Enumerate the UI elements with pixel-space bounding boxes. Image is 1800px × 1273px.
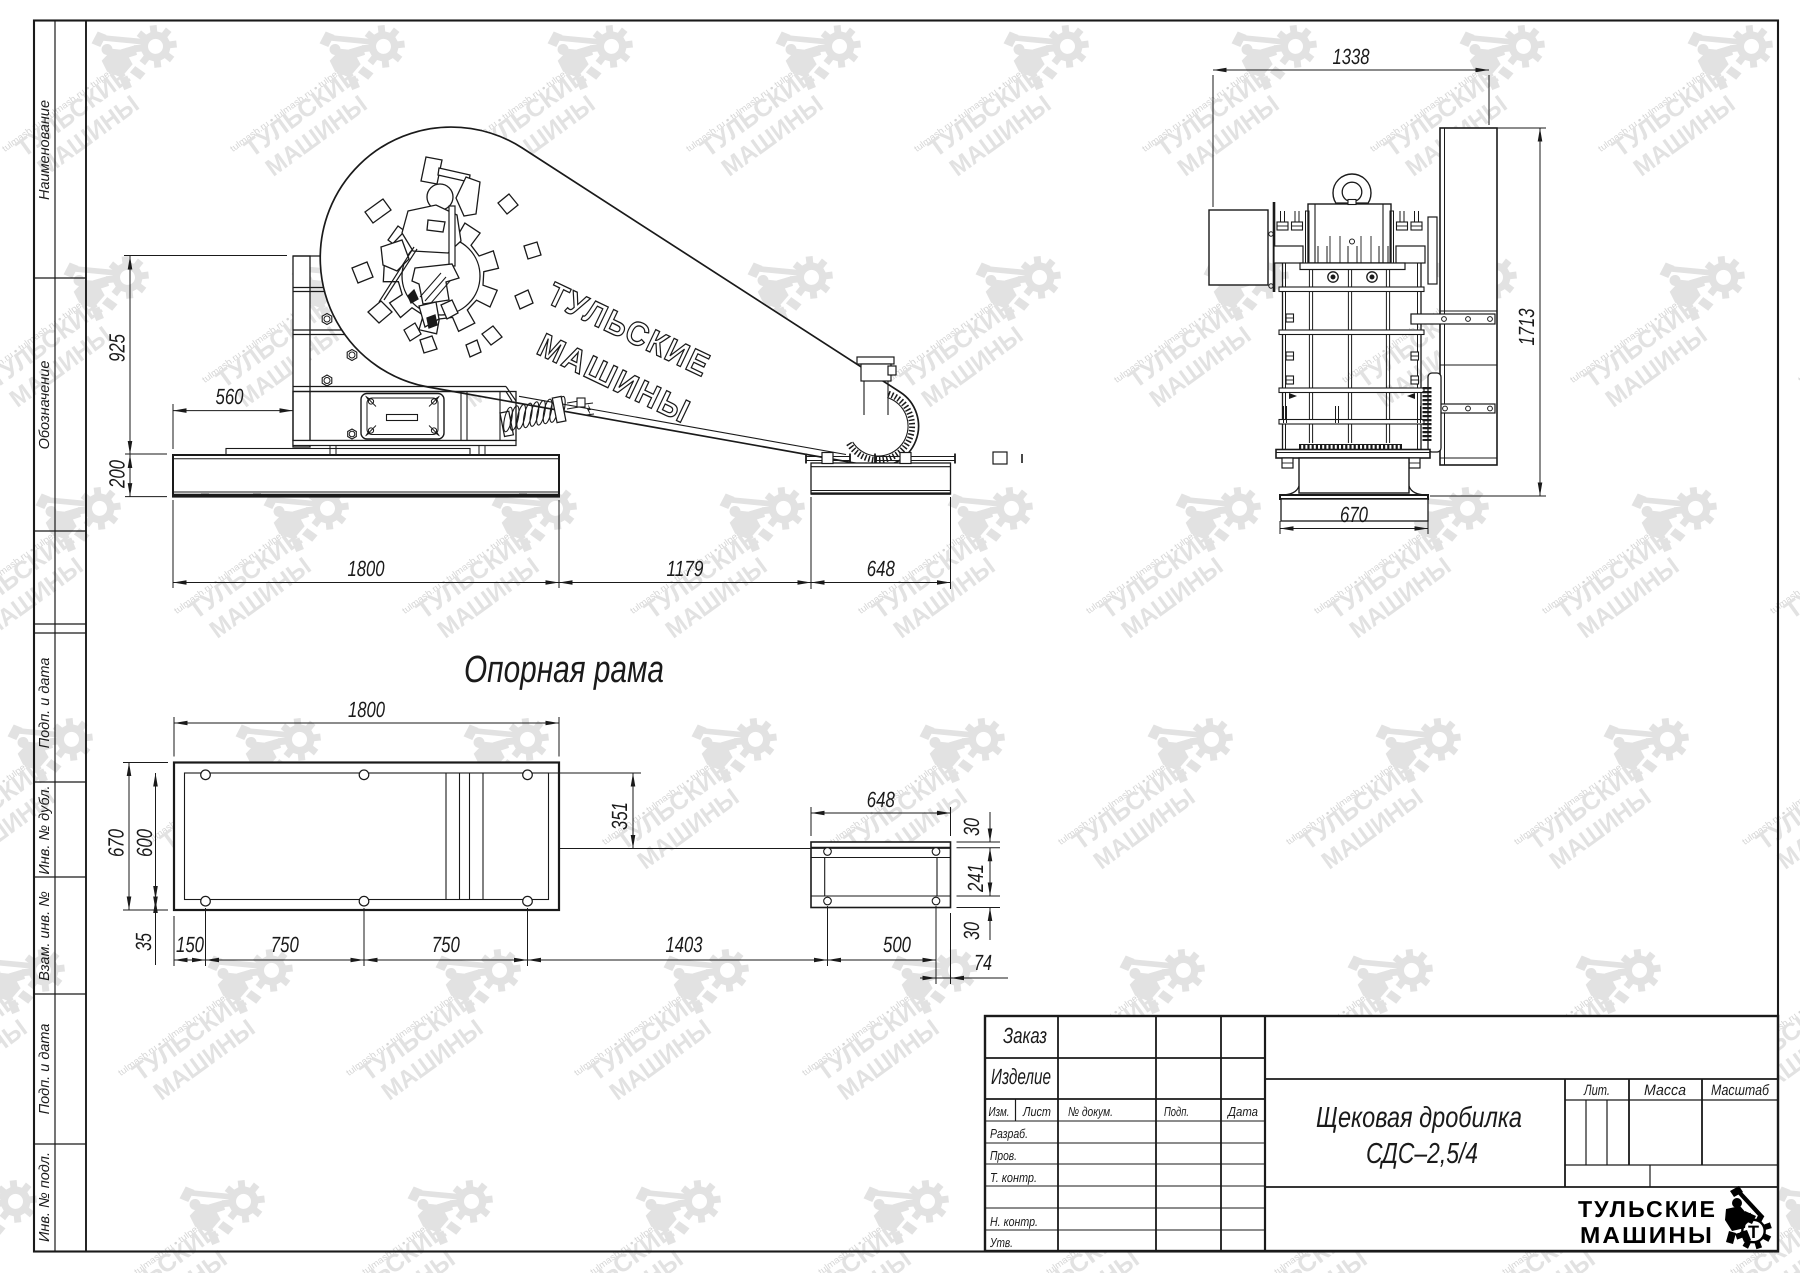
svg-text:Разраб.: Разраб.: [990, 1126, 1028, 1141]
svg-text:1403: 1403: [666, 932, 704, 957]
svg-text:150: 150: [176, 932, 205, 957]
svg-text:670: 670: [104, 828, 129, 857]
svg-text:1179: 1179: [667, 556, 704, 581]
svg-text:Масса: Масса: [1644, 1082, 1686, 1099]
svg-text:30: 30: [959, 817, 984, 836]
svg-text:Щековая дробилка: Щековая дробилка: [1316, 1102, 1522, 1134]
svg-text:№ докум.: № докум.: [1068, 1104, 1113, 1119]
svg-text:Масштаб: Масштаб: [1711, 1082, 1769, 1099]
svg-text:351: 351: [607, 802, 632, 830]
svg-text:30: 30: [959, 921, 984, 940]
svg-text:1338: 1338: [1333, 44, 1371, 69]
svg-text:200: 200: [105, 459, 130, 488]
svg-text:Взам. инв. №: Взам. инв. №: [37, 891, 53, 981]
svg-text:Обозначение: Обозначение: [37, 361, 53, 450]
svg-text:Заказ: Заказ: [1003, 1023, 1047, 1048]
svg-text:Изм.: Изм.: [989, 1104, 1010, 1119]
svg-text:Инв. № дубл.: Инв. № дубл.: [37, 785, 53, 874]
svg-text:750: 750: [432, 932, 461, 957]
svg-text:Изделие: Изделие: [991, 1064, 1051, 1089]
svg-text:Подп.: Подп.: [1164, 1104, 1189, 1119]
svg-text:750: 750: [271, 932, 300, 957]
svg-text:Опорная рама: Опорная рама: [464, 649, 664, 691]
svg-text:Инв. № подл.: Инв. № подл.: [37, 1152, 53, 1242]
svg-text:670: 670: [1340, 502, 1369, 527]
svg-text:МАШИНЫ: МАШИНЫ: [1580, 1222, 1714, 1248]
svg-text:ТУЛЬСКИЕ: ТУЛЬСКИЕ: [1578, 1196, 1717, 1222]
svg-text:СДС–2,5/4: СДС–2,5/4: [1366, 1138, 1478, 1170]
svg-text:1800: 1800: [348, 697, 386, 722]
svg-text:648: 648: [867, 556, 896, 581]
svg-text:35: 35: [131, 932, 156, 951]
svg-text:Лит.: Лит.: [1583, 1082, 1610, 1099]
svg-text:Подп. и дата: Подп. и дата: [37, 1024, 53, 1115]
svg-text:1713: 1713: [1514, 308, 1539, 346]
svg-text:500: 500: [883, 932, 912, 957]
svg-text:Н. контр.: Н. контр.: [990, 1214, 1038, 1229]
svg-text:74: 74: [974, 950, 992, 975]
svg-text:Утв.: Утв.: [989, 1235, 1013, 1250]
svg-text:Дата: Дата: [1226, 1104, 1258, 1119]
svg-text:600: 600: [132, 828, 157, 857]
svg-text:Т. контр.: Т. контр.: [990, 1170, 1037, 1185]
svg-text:560: 560: [216, 384, 245, 409]
svg-text:Лист: Лист: [1022, 1104, 1051, 1119]
svg-text:Подп. и дата: Подп. и дата: [37, 658, 53, 749]
svg-text:Пров.: Пров.: [990, 1148, 1017, 1163]
svg-text:Наименование: Наименование: [37, 100, 53, 200]
svg-text:648: 648: [867, 787, 896, 812]
svg-text:925: 925: [105, 333, 130, 362]
svg-text:241: 241: [963, 864, 988, 893]
svg-text:1800: 1800: [348, 556, 386, 581]
